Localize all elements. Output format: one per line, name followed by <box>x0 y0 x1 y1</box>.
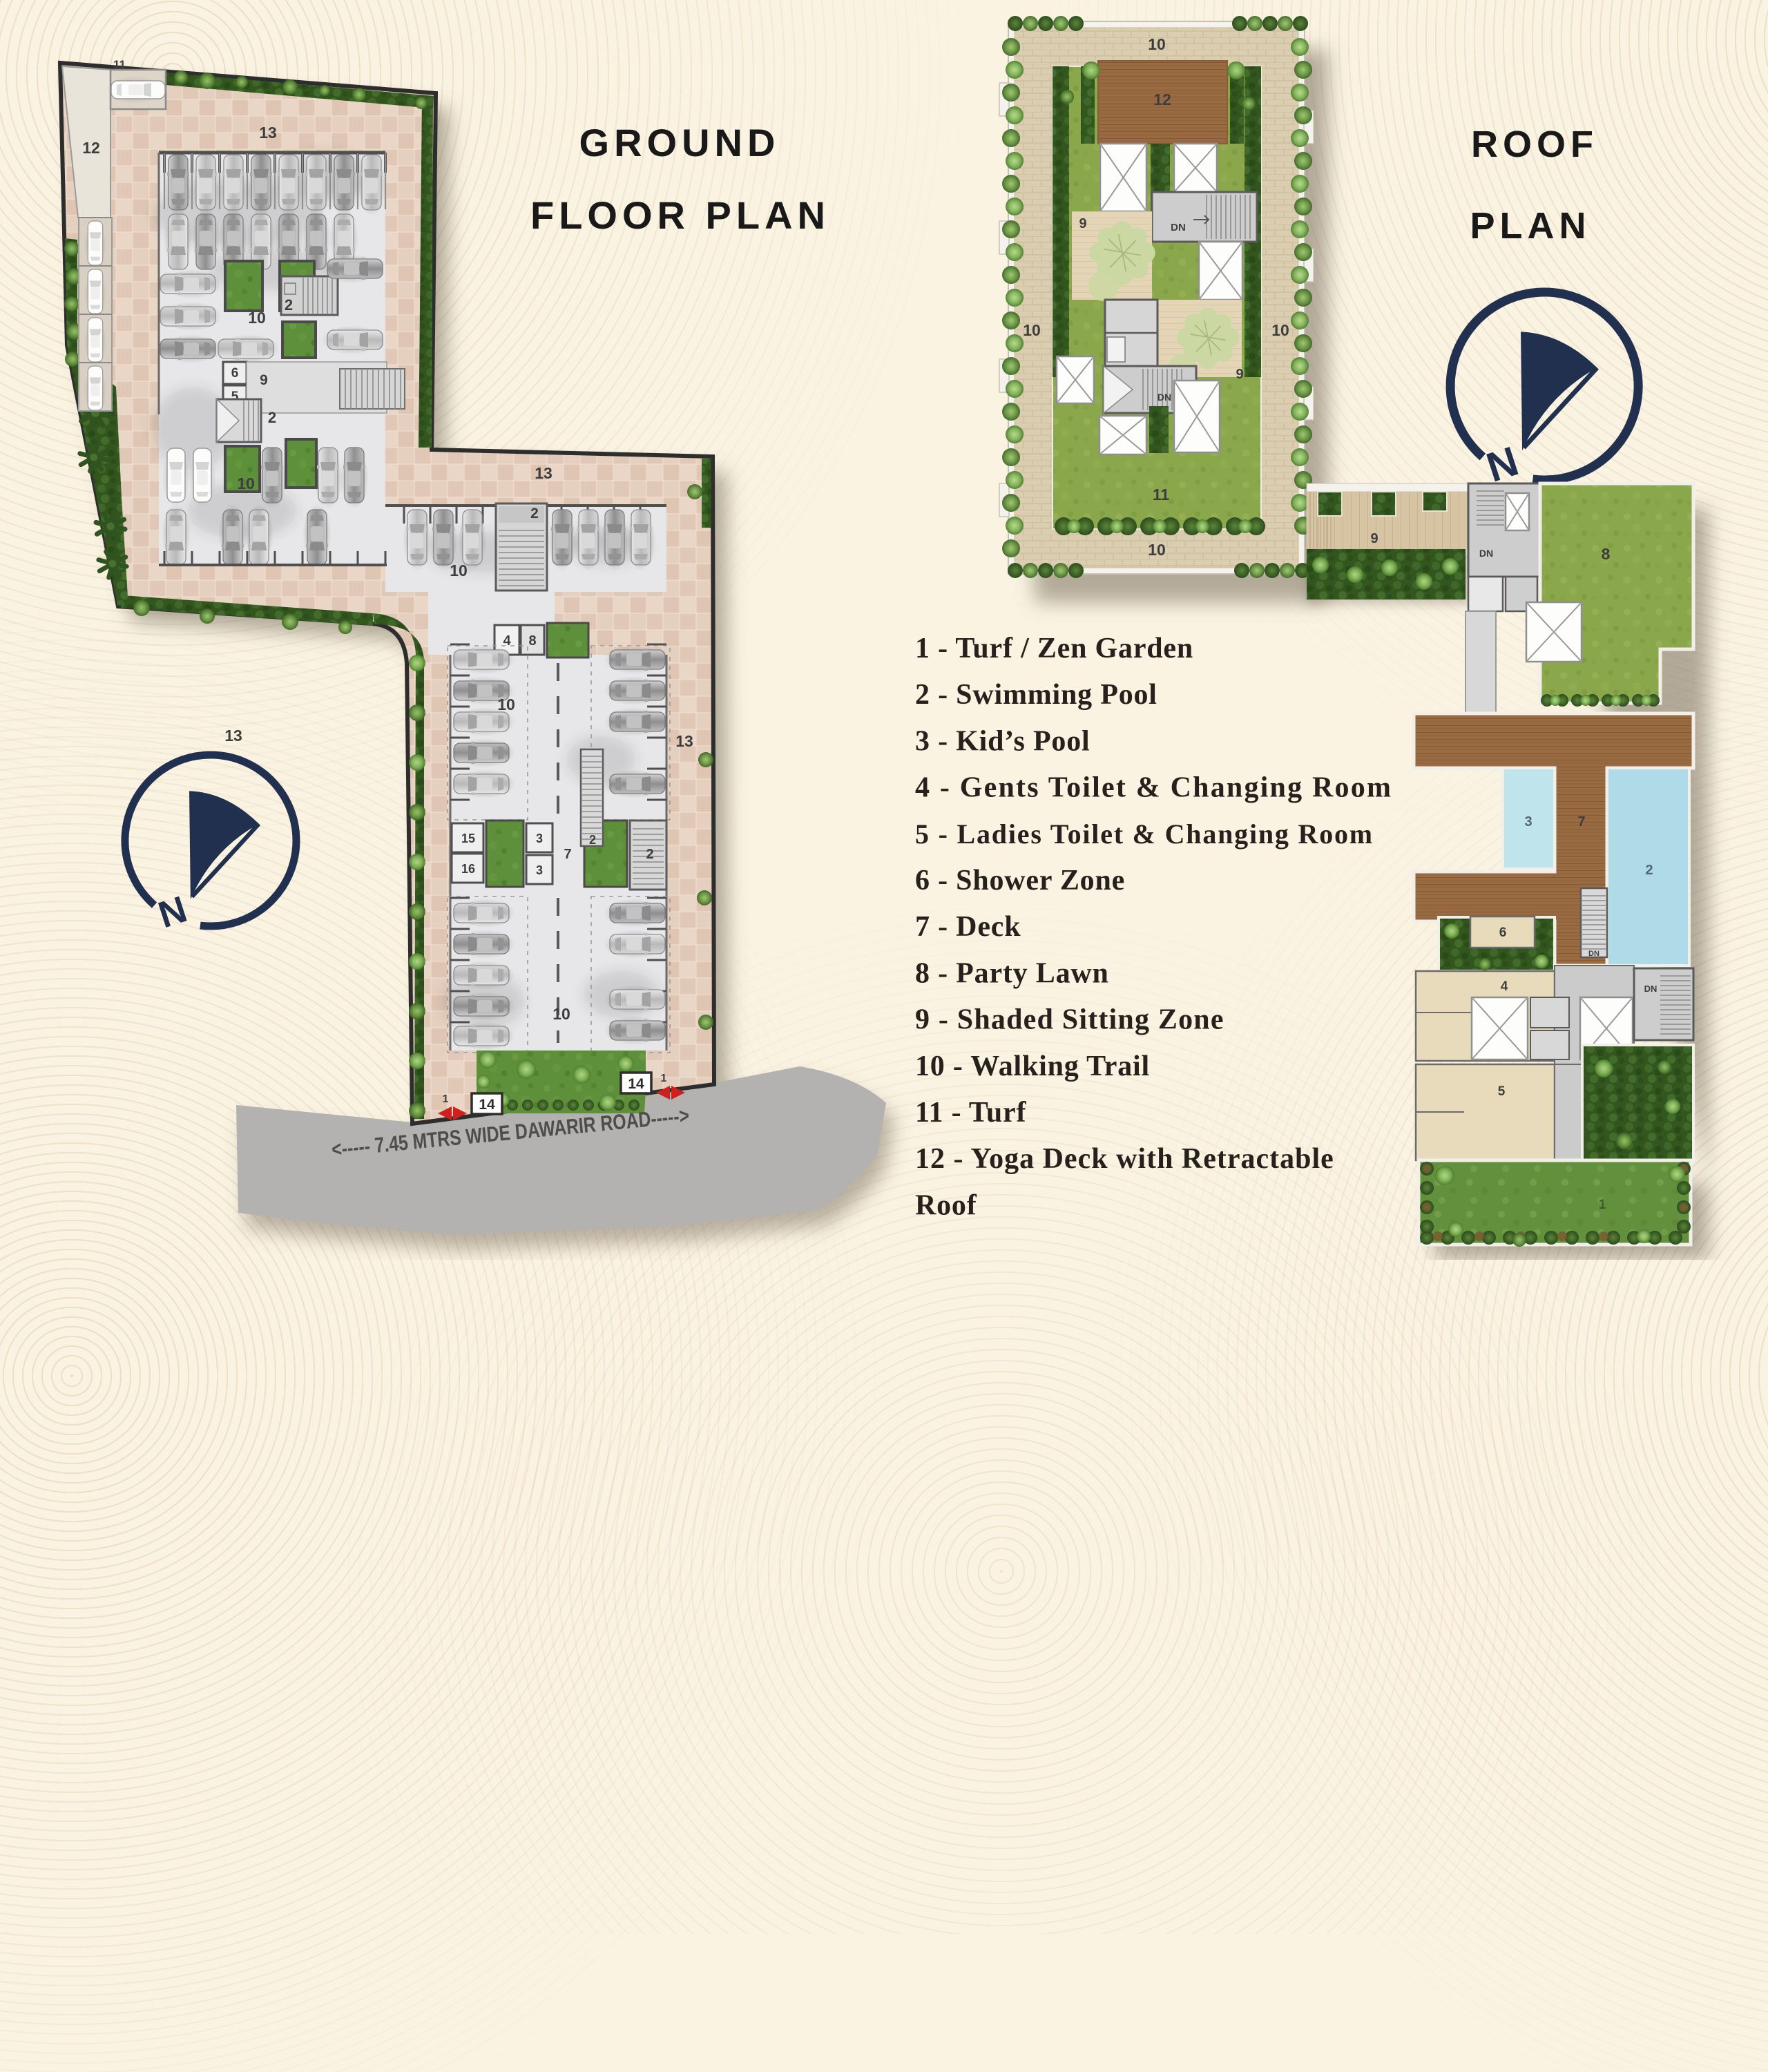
svg-text:DN: DN <box>1157 392 1171 403</box>
svg-text:3: 3 <box>1524 814 1532 829</box>
svg-text:4: 4 <box>1501 979 1508 994</box>
svg-text:11: 11 <box>1153 486 1170 503</box>
svg-text:9: 9 <box>1370 531 1378 546</box>
svg-text:DN: DN <box>1588 950 1599 958</box>
svg-text:10: 10 <box>1148 35 1166 53</box>
svg-text:12: 12 <box>82 139 100 157</box>
svg-text:10: 10 <box>237 474 255 492</box>
svg-text:PLAN: PLAN <box>1470 205 1591 247</box>
svg-text:8: 8 <box>528 633 536 649</box>
svg-text:2: 2 <box>589 833 596 847</box>
svg-text:1 - Turf / Zen Garden: 1 - Turf / Zen Garden <box>915 633 1193 664</box>
svg-text:1: 1 <box>443 1093 449 1105</box>
svg-text:N: N <box>153 888 192 936</box>
svg-text:12 - Yoga Deck with Retractabl: 12 - Yoga Deck with Retractable <box>915 1143 1334 1175</box>
svg-text:10: 10 <box>1148 541 1166 559</box>
svg-text:13: 13 <box>675 732 693 750</box>
svg-text:7: 7 <box>1577 814 1585 829</box>
svg-text:2: 2 <box>530 506 539 521</box>
svg-text:10: 10 <box>497 696 515 713</box>
svg-text:1: 1 <box>1599 1198 1606 1212</box>
svg-text:10: 10 <box>1023 321 1041 339</box>
svg-text:5: 5 <box>1498 1084 1506 1099</box>
svg-text:2: 2 <box>646 847 653 862</box>
svg-text:3 - Kid’s Pool: 3 - Kid’s Pool <box>915 725 1090 757</box>
svg-text:DN: DN <box>1479 548 1493 559</box>
svg-text:6: 6 <box>1499 925 1507 940</box>
svg-text:10: 10 <box>552 1005 570 1023</box>
svg-text:13: 13 <box>224 727 242 745</box>
svg-text:11: 11 <box>113 58 126 71</box>
svg-text:2 - Swimming Pool: 2 - Swimming Pool <box>915 679 1157 711</box>
svg-text:7: 7 <box>564 847 571 862</box>
svg-text:2: 2 <box>1645 863 1653 878</box>
svg-text:8 - Party Lawn: 8 - Party Lawn <box>915 957 1109 989</box>
svg-text:9: 9 <box>260 372 268 388</box>
svg-text:13: 13 <box>535 464 552 482</box>
svg-text:FLOOR PLAN: FLOOR PLAN <box>530 193 830 237</box>
svg-text:9: 9 <box>1079 216 1086 231</box>
svg-text:1: 1 <box>661 1073 667 1084</box>
svg-text:2: 2 <box>285 296 293 314</box>
svg-text:ROOF: ROOF <box>1471 124 1598 165</box>
svg-text:14: 14 <box>479 1097 495 1113</box>
svg-text:DN: DN <box>1644 984 1657 994</box>
svg-text:10: 10 <box>1271 321 1289 339</box>
svg-text:16: 16 <box>461 862 475 876</box>
svg-text:GROUND: GROUND <box>579 121 780 164</box>
svg-text:4 - Gents Toilet & Changing Ro: 4 - Gents Toilet & Changing Room <box>915 772 1392 804</box>
svg-text:2: 2 <box>268 409 276 426</box>
svg-text:Roof: Roof <box>915 1189 977 1221</box>
svg-text:11 - Turf: 11 - Turf <box>915 1097 1026 1129</box>
svg-text:8: 8 <box>1602 545 1611 563</box>
svg-text:10 - Walking Trail: 10 - Walking Trail <box>915 1051 1150 1082</box>
svg-text:10: 10 <box>248 309 266 327</box>
svg-text:15: 15 <box>461 832 475 845</box>
svg-text:9: 9 <box>1236 367 1243 382</box>
svg-text:3: 3 <box>536 863 543 877</box>
svg-text:5 - Ladies Toilet & Changing R: 5 - Ladies Toilet & Changing Room <box>915 818 1374 850</box>
svg-text:10: 10 <box>450 562 468 579</box>
svg-text:14: 14 <box>628 1076 644 1092</box>
svg-text:12: 12 <box>1153 90 1171 108</box>
svg-text:13: 13 <box>259 124 277 142</box>
svg-text:7 - Deck: 7 - Deck <box>915 911 1021 943</box>
svg-text:9 - Shaded Sitting Zone: 9 - Shaded Sitting Zone <box>915 1004 1224 1036</box>
svg-text:3: 3 <box>536 832 543 845</box>
svg-text:6: 6 <box>231 366 239 381</box>
svg-text:DN: DN <box>1171 222 1186 233</box>
svg-text:6 - Shower Zone: 6 - Shower Zone <box>915 865 1125 896</box>
